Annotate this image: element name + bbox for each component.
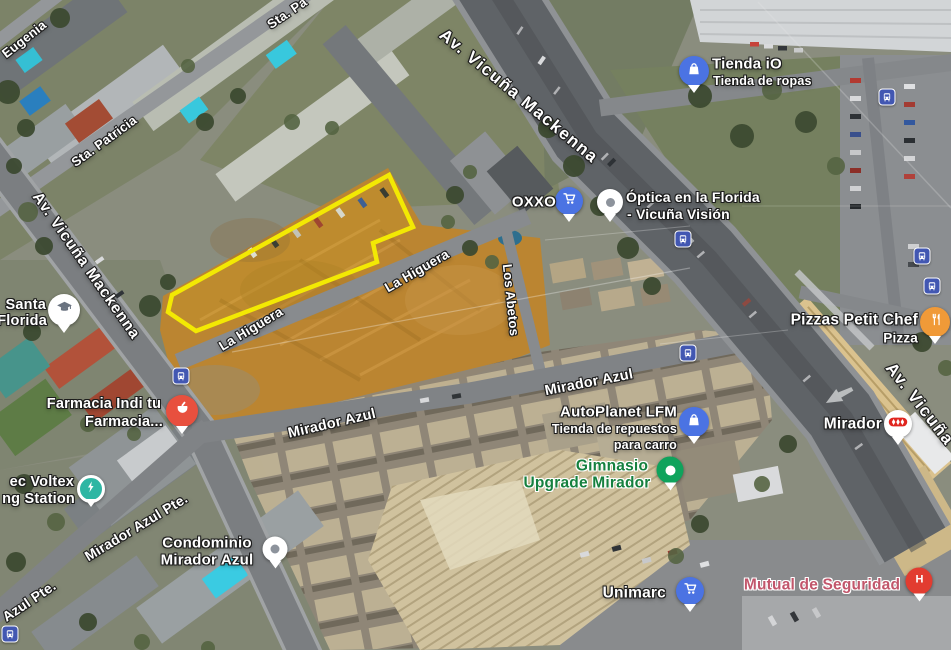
parcel-outline[interactable] bbox=[168, 175, 413, 331]
autoplanet-title: AutoPlanet LFM bbox=[560, 405, 677, 420]
farmacia-line1: Farmacia Indi tu bbox=[47, 397, 161, 412]
svg-text:H: H bbox=[915, 574, 923, 586]
pizzas-pin[interactable] bbox=[920, 307, 950, 337]
unimarc-pin[interactable] bbox=[676, 577, 704, 605]
santa-florida-pin[interactable] bbox=[48, 294, 80, 326]
restaurant-icon bbox=[928, 312, 943, 332]
bus-stop-icon[interactable] bbox=[2, 626, 19, 643]
autoplanet-line2: Tienda de repuestos bbox=[552, 423, 677, 436]
oxxo-pin[interactable] bbox=[555, 187, 583, 215]
tienda-io-subtitle: Tienda de ropas bbox=[713, 75, 812, 88]
voltex-line1: ec Voltex bbox=[10, 475, 74, 490]
metro-mirador-pin[interactable] bbox=[884, 410, 912, 438]
optica-line2: - Vicuña Visión bbox=[627, 207, 730, 221]
pizzas-title: Pizzas Petit Chef bbox=[791, 312, 918, 328]
pizzas-subtitle: Pizza bbox=[883, 331, 918, 345]
metro-logo-icon bbox=[887, 411, 909, 438]
bus-stop-icon[interactable] bbox=[173, 368, 190, 385]
pharmacy-mortar-icon bbox=[174, 400, 191, 422]
satellite-map-view[interactable]: Eugenia Sta. Pa Sta. Patricia Av. Vicuña… bbox=[0, 0, 951, 650]
graduation-cap-icon bbox=[55, 298, 74, 322]
place-dot-icon bbox=[271, 545, 280, 554]
metro-mirador-title: Mirador bbox=[824, 416, 882, 432]
mutual-title: Mutual de Seguridad bbox=[744, 577, 900, 593]
condominio-pin[interactable] bbox=[263, 537, 288, 562]
tienda-io-title: Tienda iO bbox=[712, 57, 782, 72]
bus-stop-icon[interactable] bbox=[914, 248, 931, 265]
santa-florida-line1: Santa bbox=[6, 298, 47, 313]
oxxo-title: OXXO bbox=[512, 195, 556, 210]
santa-florida-line2: Florida bbox=[0, 314, 47, 329]
place-dot-icon bbox=[606, 198, 615, 207]
lightning-bolt-icon bbox=[84, 480, 98, 499]
autoplanet-pin[interactable] bbox=[679, 407, 709, 437]
shopping-bag-icon bbox=[686, 61, 702, 82]
shopping-cart-icon bbox=[562, 191, 577, 211]
autoplanet-line3: para carro bbox=[614, 439, 677, 452]
voltex-pin[interactable] bbox=[77, 475, 105, 503]
optica-line1: Óptica en la Florida bbox=[626, 190, 760, 204]
bus-stop-icon[interactable] bbox=[924, 278, 941, 295]
condominio-line2: Mirador Azul bbox=[161, 553, 254, 568]
tienda-io-pin[interactable] bbox=[679, 56, 709, 86]
gimnasio-line1: Gimnasio bbox=[576, 458, 648, 474]
optica-pin[interactable] bbox=[597, 189, 623, 215]
hospital-h-icon: H bbox=[911, 571, 927, 592]
condominio-line1: Condominio bbox=[162, 536, 251, 551]
unimarc-title: Unimarc bbox=[603, 585, 666, 601]
farmacia-line2: Farmacia... bbox=[85, 415, 163, 430]
farmacia-pin[interactable] bbox=[166, 395, 198, 427]
mutual-pin[interactable]: H bbox=[906, 568, 933, 595]
gimnasio-pin[interactable] bbox=[657, 457, 684, 484]
bus-stop-icon[interactable] bbox=[675, 231, 692, 248]
shopping-bag-icon bbox=[686, 412, 702, 433]
bus-stop-icon[interactable] bbox=[879, 89, 896, 106]
place-dot-icon bbox=[665, 465, 675, 475]
voltex-line2: ng Station bbox=[2, 492, 75, 507]
gimnasio-line2: Upgrade Mirador bbox=[523, 475, 650, 491]
shopping-cart-icon bbox=[683, 581, 698, 601]
bus-stop-icon[interactable] bbox=[680, 345, 697, 362]
